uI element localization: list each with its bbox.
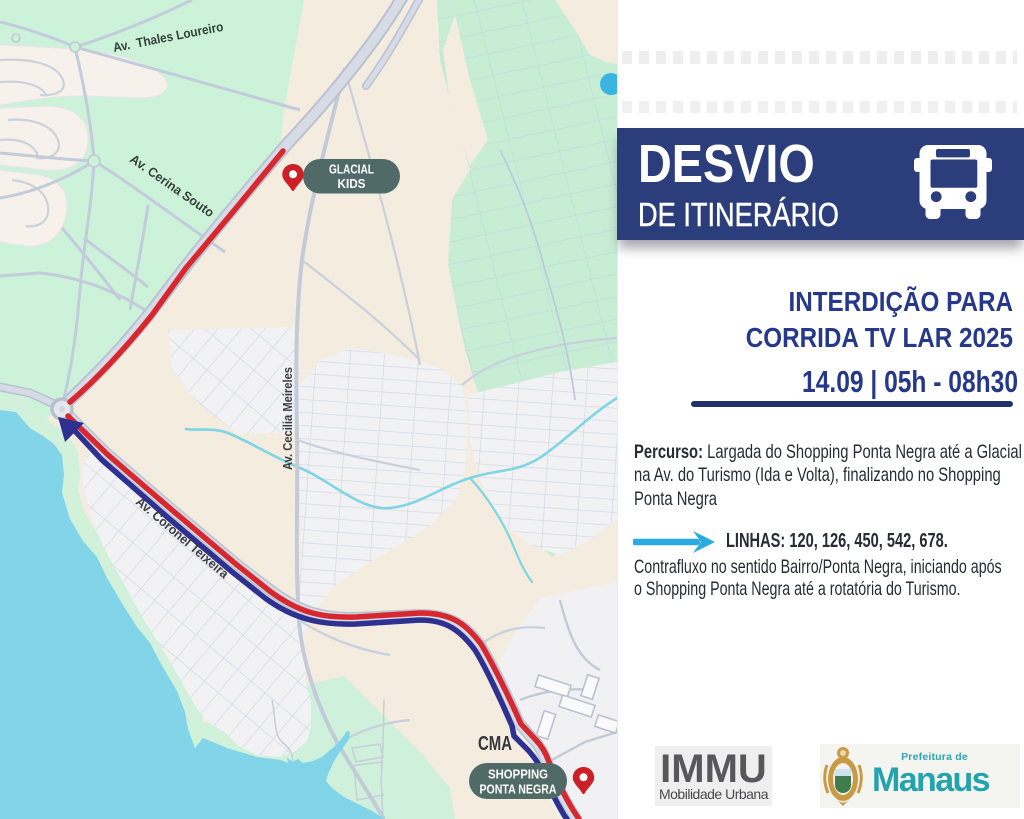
svg-text:CMA: CMA — [478, 733, 512, 755]
svg-text:Av. Cecilia Meireles: Av. Cecilia Meireles — [280, 367, 295, 470]
svg-text:SHOPPING: SHOPPING — [488, 768, 548, 782]
svg-text:PONTA NEGRA: PONTA NEGRA — [480, 783, 557, 797]
svg-text:GLACIAL: GLACIAL — [329, 163, 374, 177]
svg-text:KIDS: KIDS — [338, 177, 366, 191]
